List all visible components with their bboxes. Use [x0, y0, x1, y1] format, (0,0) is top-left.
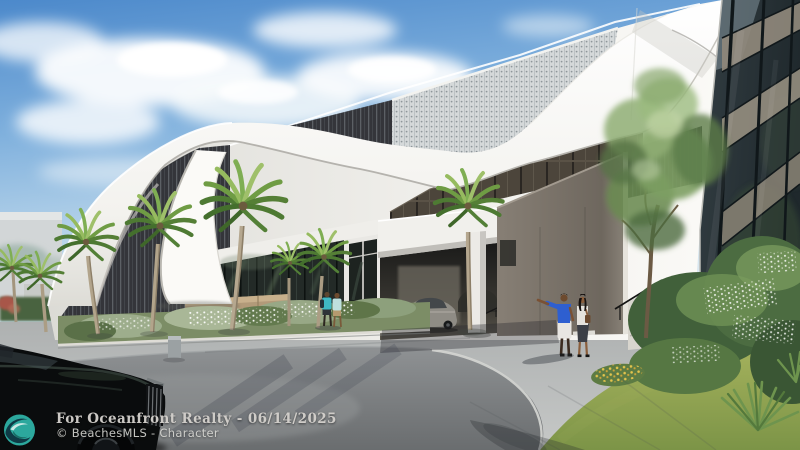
- grille: [146, 379, 164, 427]
- listing-photo: For Oceanfront Realty - 06/14/2025 © Bea…: [0, 0, 800, 450]
- scene-render: [0, 0, 800, 450]
